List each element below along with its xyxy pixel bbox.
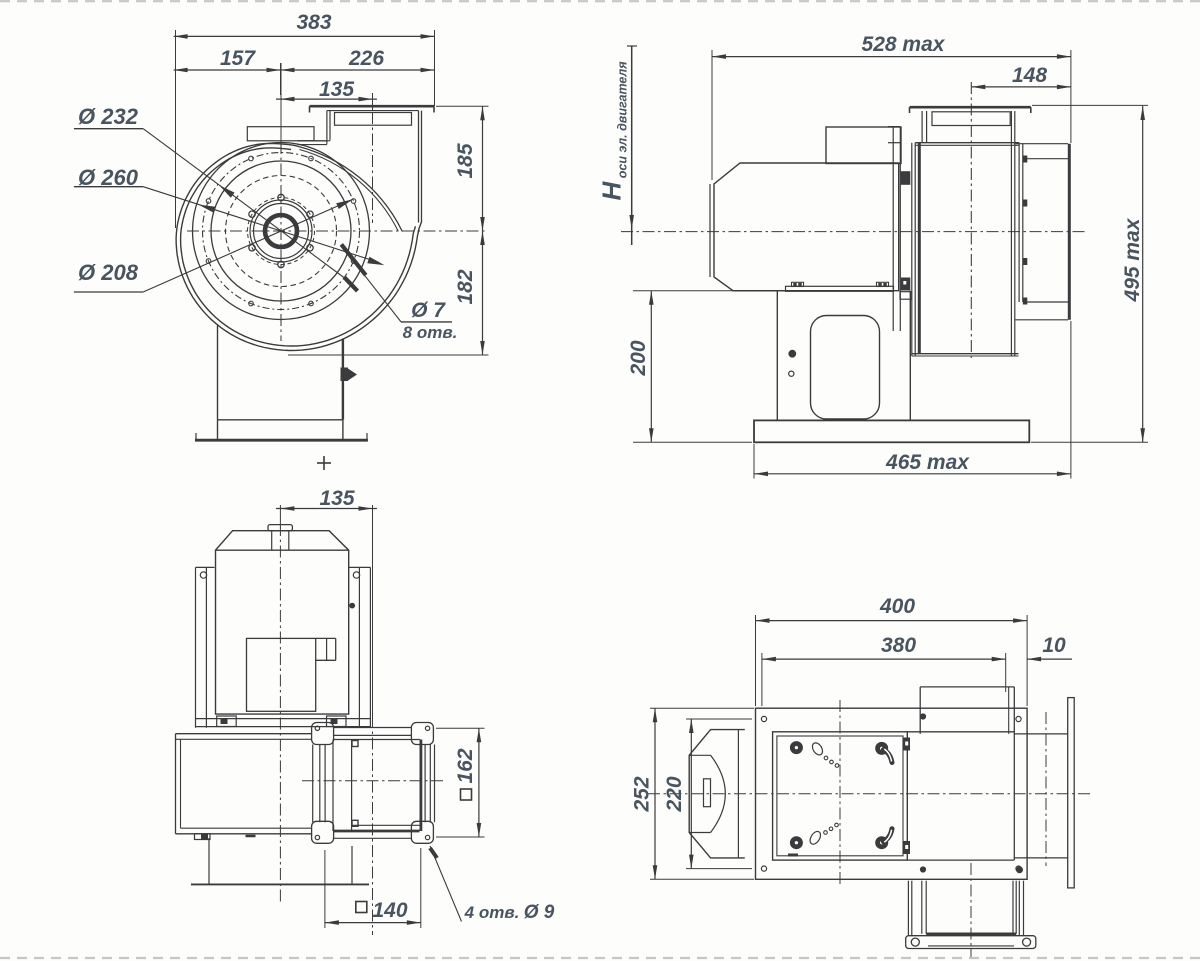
svg-text:465 max: 465 max xyxy=(885,451,970,474)
svg-text:4 отв.: 4 отв. xyxy=(464,903,520,922)
svg-text:140: 140 xyxy=(372,899,407,922)
svg-text:Ø 208: Ø 208 xyxy=(78,260,139,285)
svg-text:220: 220 xyxy=(663,776,686,812)
svg-text:383: 383 xyxy=(296,11,331,34)
svg-text:226: 226 xyxy=(348,47,384,70)
svg-text:8 отв.: 8 отв. xyxy=(403,323,458,342)
svg-text:Ø 7: Ø 7 xyxy=(411,299,446,322)
svg-text:10: 10 xyxy=(1042,634,1066,657)
svg-text:Ø 260: Ø 260 xyxy=(78,165,139,190)
svg-text:400: 400 xyxy=(879,595,915,618)
svg-text:182: 182 xyxy=(454,269,477,304)
svg-text:135: 135 xyxy=(319,487,354,510)
svg-text:528 max: 528 max xyxy=(862,33,946,56)
svg-text:495 max: 495 max xyxy=(1121,217,1144,302)
svg-text:135: 135 xyxy=(319,78,354,101)
svg-text:185: 185 xyxy=(454,143,477,178)
svg-text:148: 148 xyxy=(1012,64,1047,87)
svg-text:200: 200 xyxy=(627,340,650,376)
svg-text:162: 162 xyxy=(454,748,477,783)
svg-text:380: 380 xyxy=(881,634,916,657)
svg-text:Ø 232: Ø 232 xyxy=(78,104,139,129)
svg-text:Н оси эл. двигателя: Н оси эл. двигателя xyxy=(597,61,630,201)
svg-text:157: 157 xyxy=(220,47,256,70)
svg-text:252: 252 xyxy=(631,776,654,812)
svg-text:Ø 9: Ø 9 xyxy=(524,902,555,923)
